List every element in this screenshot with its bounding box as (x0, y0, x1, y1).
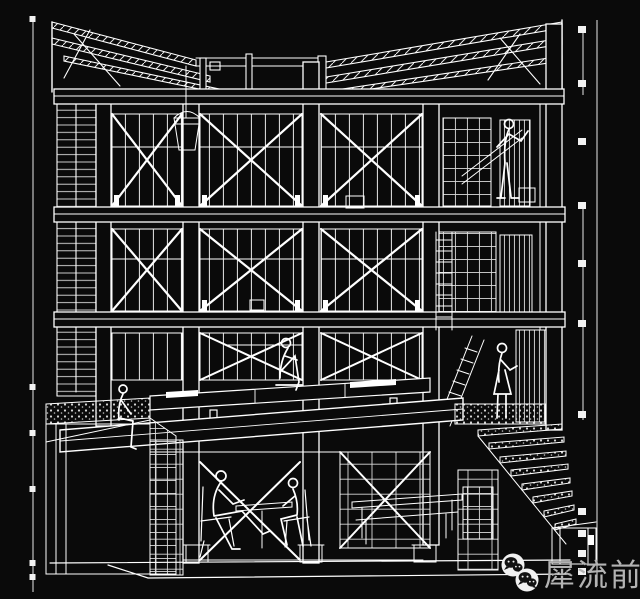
screenshot-root: 犀流前报 (0, 0, 640, 599)
watermark: 犀流前报 (502, 554, 640, 594)
window-grid-row-3 (112, 333, 422, 380)
left-wall-siding (57, 92, 96, 396)
wechat-icon-2 (516, 569, 539, 592)
architectural-section-drawing: 犀流前报 (0, 0, 640, 599)
window-grid-row-2 (112, 229, 422, 311)
window-grid-row-1 (112, 114, 422, 206)
watermark-text: 犀流前报 (544, 558, 640, 593)
